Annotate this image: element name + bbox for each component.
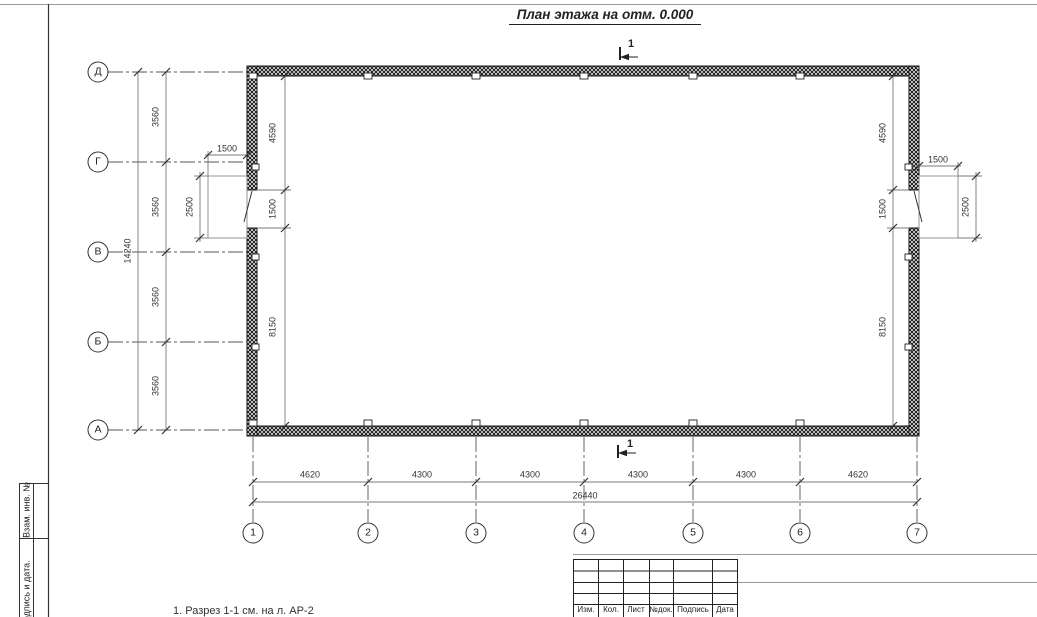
axis-bubble-col-6: 6 <box>790 523 811 544</box>
walls <box>247 66 919 436</box>
dim-door-left-depth: 2500 <box>186 197 195 217</box>
sheet-note: 1. Разрез 1-1 см. на л. АР-2 <box>173 605 314 617</box>
axis-label: В <box>94 247 101 258</box>
dim-row-spacing-2: 3560 <box>152 197 161 217</box>
stamp-header-list: Лист <box>627 606 644 614</box>
dim-col-spacing-1: 4620 <box>300 471 320 480</box>
stamp-header-izm: Изм. <box>577 606 594 614</box>
axis-bubble-col-5: 5 <box>683 523 704 544</box>
axis-bubble-row-d: Д <box>88 62 109 83</box>
axis-lines <box>108 72 917 522</box>
section-label-top: 1 <box>628 39 634 50</box>
pilasters <box>249 73 912 426</box>
drawing-sheet: План этажа на отм. 0.000 1 1 Д Г В Б А 1… <box>0 0 1037 617</box>
margin-label-vzam-inv: Взам. инв. № <box>22 482 31 538</box>
axis-bubble-col-3: 3 <box>466 523 487 544</box>
dim-row-spacing-4: 3560 <box>152 376 161 396</box>
axis-label: 6 <box>797 528 803 539</box>
drawing-title-text: План этажа на отм. 0.000 <box>509 7 702 25</box>
dim-door-left-width: 1500 <box>217 145 237 154</box>
dim-col-total: 26440 <box>572 492 597 501</box>
dim-door-right-width: 1500 <box>928 156 948 165</box>
axis-label: 2 <box>365 528 371 539</box>
margin-label-podpis-data: Подпись и дата. <box>22 560 31 617</box>
dim-interior-right-2: 1500 <box>879 199 888 219</box>
axis-bubble-col-7: 7 <box>907 523 928 544</box>
dim-interior-right-3: 8150 <box>879 317 888 337</box>
doors <box>208 176 958 238</box>
axis-label: Г <box>95 157 101 168</box>
dimension-lines <box>138 72 982 502</box>
dim-row-total: 14240 <box>124 238 133 263</box>
dim-interior-left-1: 4590 <box>269 123 278 143</box>
dim-col-spacing-5: 4300 <box>736 471 756 480</box>
axis-label: Д <box>94 67 101 78</box>
stamp-header-ndok: №док. <box>649 606 672 614</box>
axis-label: 5 <box>690 528 696 539</box>
axis-bubble-row-b: Б <box>88 332 109 353</box>
axis-bubble-row-v: В <box>88 242 109 263</box>
section-label-bottom: 1 <box>627 439 633 450</box>
dim-row-spacing-1: 3560 <box>152 107 161 127</box>
dim-interior-left-3: 8150 <box>269 317 278 337</box>
dim-col-spacing-2: 4300 <box>412 471 432 480</box>
stamp-header-data: Дата <box>716 606 734 614</box>
axis-bubble-col-1: 1 <box>243 523 264 544</box>
axis-label: 1 <box>250 528 256 539</box>
drawing-title: План этажа на отм. 0.000 <box>440 7 770 22</box>
dimension-ticks <box>134 68 980 506</box>
dim-interior-right-1: 4590 <box>879 123 888 143</box>
axis-bubble-col-4: 4 <box>574 523 595 544</box>
axis-label: 7 <box>914 528 920 539</box>
axis-label: Б <box>95 337 102 348</box>
stamp-header-kol: Кол. <box>603 606 619 614</box>
dim-col-spacing-3: 4300 <box>520 471 540 480</box>
axis-label: 3 <box>473 528 479 539</box>
dim-door-right-depth: 2500 <box>962 197 971 217</box>
sheet-frame <box>0 4 1037 617</box>
axis-bubble-row-g: Г <box>88 152 109 173</box>
axis-bubble-col-2: 2 <box>358 523 379 544</box>
axis-label: 4 <box>581 528 587 539</box>
stamp-header-podpis: Подпись <box>677 606 709 614</box>
drawing-linework <box>0 0 1037 617</box>
dim-col-spacing-4: 4300 <box>628 471 648 480</box>
dim-interior-left-2: 1500 <box>269 199 278 219</box>
axis-label: А <box>94 425 101 436</box>
dim-row-spacing-3: 3560 <box>152 287 161 307</box>
dim-col-spacing-6: 4620 <box>848 471 868 480</box>
axis-bubble-row-a: А <box>88 420 109 441</box>
